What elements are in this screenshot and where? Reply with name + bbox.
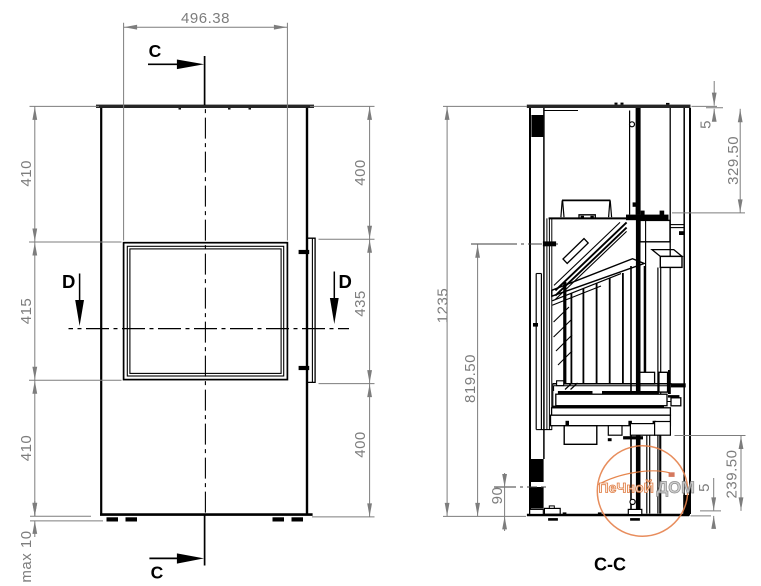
svg-text:D: D [62, 271, 75, 292]
svg-text:5: 5 [698, 120, 715, 129]
svg-text:329.50: 329.50 [725, 136, 742, 185]
svg-text:C-C: C-C [594, 555, 626, 575]
svg-text:400: 400 [352, 431, 369, 458]
svg-text:C: C [149, 41, 162, 61]
svg-text:D: D [339, 271, 352, 292]
svg-text:239.50: 239.50 [723, 450, 740, 499]
svg-text:max 10: max 10 [18, 530, 35, 582]
svg-text:C: C [151, 562, 164, 582]
svg-text:1235: 1235 [434, 288, 451, 323]
svg-text:400: 400 [352, 159, 369, 186]
svg-text:410: 410 [18, 160, 35, 187]
svg-text:90: 90 [489, 487, 506, 505]
svg-text:435: 435 [352, 290, 369, 317]
svg-text:819.50: 819.50 [462, 354, 479, 403]
svg-text:410: 410 [18, 435, 35, 462]
svg-text:415: 415 [18, 298, 35, 325]
svg-text:ПеЧноЙ: ПеЧноЙ [599, 479, 654, 496]
svg-text:5: 5 [696, 483, 713, 492]
svg-text:ДОМ: ДОМ [657, 479, 695, 497]
svg-text:496.38: 496.38 [181, 10, 230, 27]
